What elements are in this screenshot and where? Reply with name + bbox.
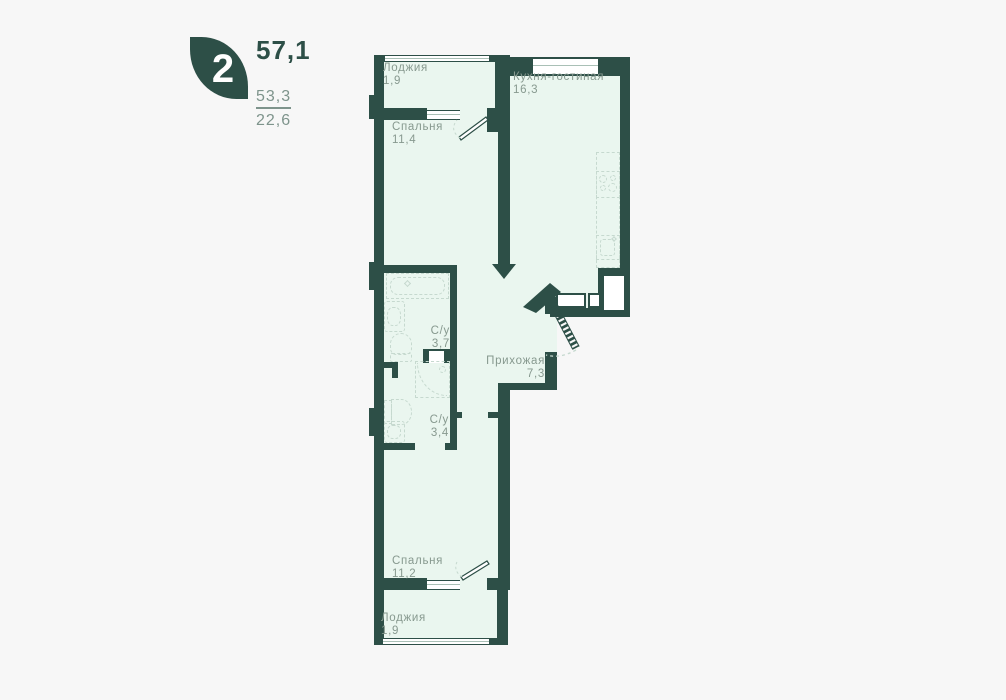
room-name: Кухня-гостиная	[513, 71, 604, 84]
burner	[599, 175, 607, 183]
wall-lower-right	[498, 383, 510, 590]
wall-bedroom1-top-pillar	[487, 108, 510, 132]
window-loggia-top	[385, 55, 489, 62]
vent-shaft-icon	[604, 276, 624, 310]
wall-bump	[369, 408, 375, 436]
door-jamb-corridor	[488, 412, 498, 418]
window-bedroom2-loggia	[427, 580, 460, 590]
page: { "page": { "background": "#f7f7f7" }, "…	[0, 0, 1006, 700]
washbasin-inner	[387, 425, 401, 439]
wall-stub	[392, 362, 398, 378]
room-area: 3,7	[431, 338, 450, 351]
room-label-loggia-top: Лоджия 1,9	[383, 62, 428, 88]
room-area: 1,9	[383, 75, 428, 88]
door-jamb-corridor	[450, 412, 462, 418]
room-name: Спальня	[392, 121, 443, 134]
wall-loggia1-bottom	[374, 108, 427, 120]
washbasin-inner	[387, 307, 401, 326]
floor-plan: Лоджия 1,9 Спальня 11,4 Кухня-гостиная 1…	[0, 0, 1006, 700]
burner	[600, 185, 606, 191]
wall-bathroom1-top	[374, 265, 457, 273]
burner	[608, 183, 617, 192]
room-name: С/у	[431, 325, 450, 338]
wall-stub	[445, 443, 457, 450]
room-label-bedroom-bottom: Спальня 11,2	[392, 555, 443, 581]
room-area: 11,2	[392, 568, 443, 581]
wall-bathroom2-bottom	[384, 443, 415, 450]
room-label-bedroom-top: Спальня 11,4	[392, 121, 443, 147]
room-area: 16,3	[513, 84, 604, 97]
room-name: Лоджия	[383, 62, 428, 75]
cabinet-icon	[588, 293, 601, 308]
room-label-hallway: Прихожая 7,3	[486, 355, 545, 381]
room-area: 11,4	[392, 134, 443, 147]
room-name: С/у	[430, 414, 449, 427]
toilet-icon	[390, 333, 412, 355]
room-area: 1,9	[381, 625, 426, 638]
room-name: Прихожая	[486, 355, 545, 368]
wall-left-outer	[374, 55, 384, 645]
room-area: 3,4	[430, 427, 449, 440]
window-loggia-bottom	[383, 638, 489, 645]
room-label-bathroom-1: С/у 3,7	[431, 325, 450, 351]
bathtub-inner	[390, 277, 445, 295]
burner	[610, 175, 616, 181]
wall-hallway-right	[545, 352, 557, 390]
shower-head	[439, 366, 446, 373]
wall-loggia2-right	[497, 578, 508, 645]
room-name: Спальня	[392, 555, 443, 568]
room-label-loggia-bottom: Лоджия 1,9	[381, 612, 426, 638]
room-name: Лоджия	[381, 612, 426, 625]
room-label-bathroom-2: С/у 3,4	[430, 414, 449, 440]
room-area: 7,3	[486, 368, 545, 381]
wall-bathrooms-right	[450, 265, 457, 450]
room-label-kitchen-living: Кухня-гостиная 16,3	[513, 71, 604, 97]
cabinet-icon	[556, 293, 586, 308]
toilet-tank	[390, 353, 412, 362]
window-bedroom1-loggia	[427, 110, 460, 120]
